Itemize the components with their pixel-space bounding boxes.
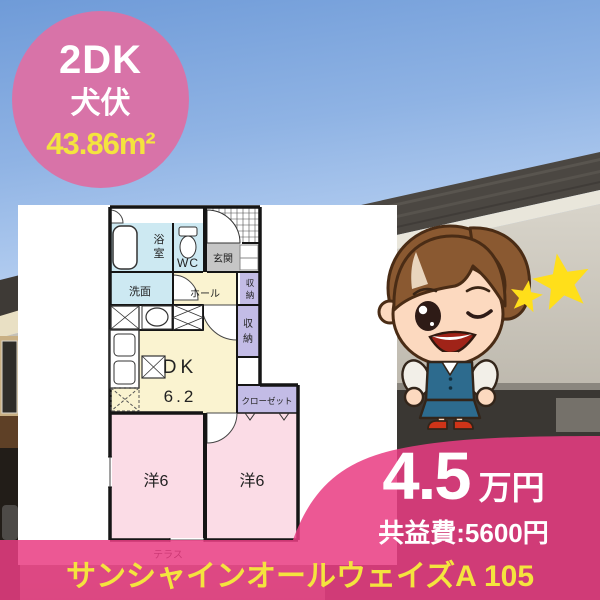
price-block: 4.5 万円 共益費:5600円 <box>327 443 600 550</box>
rent-unit: 万円 <box>479 461 545 509</box>
property-name-banner: サンシャインオールウェイズA 105 <box>0 551 600 595</box>
real-estate-flyer: 浴 室 WC 玄関 洗面 ホール 収 納 収 納 DK 6.2 クローゼット 洋… <box>0 0 600 600</box>
rent-amount: 4.5 <box>382 443 469 510</box>
common-fee: 共益費:5600円 <box>327 513 600 550</box>
